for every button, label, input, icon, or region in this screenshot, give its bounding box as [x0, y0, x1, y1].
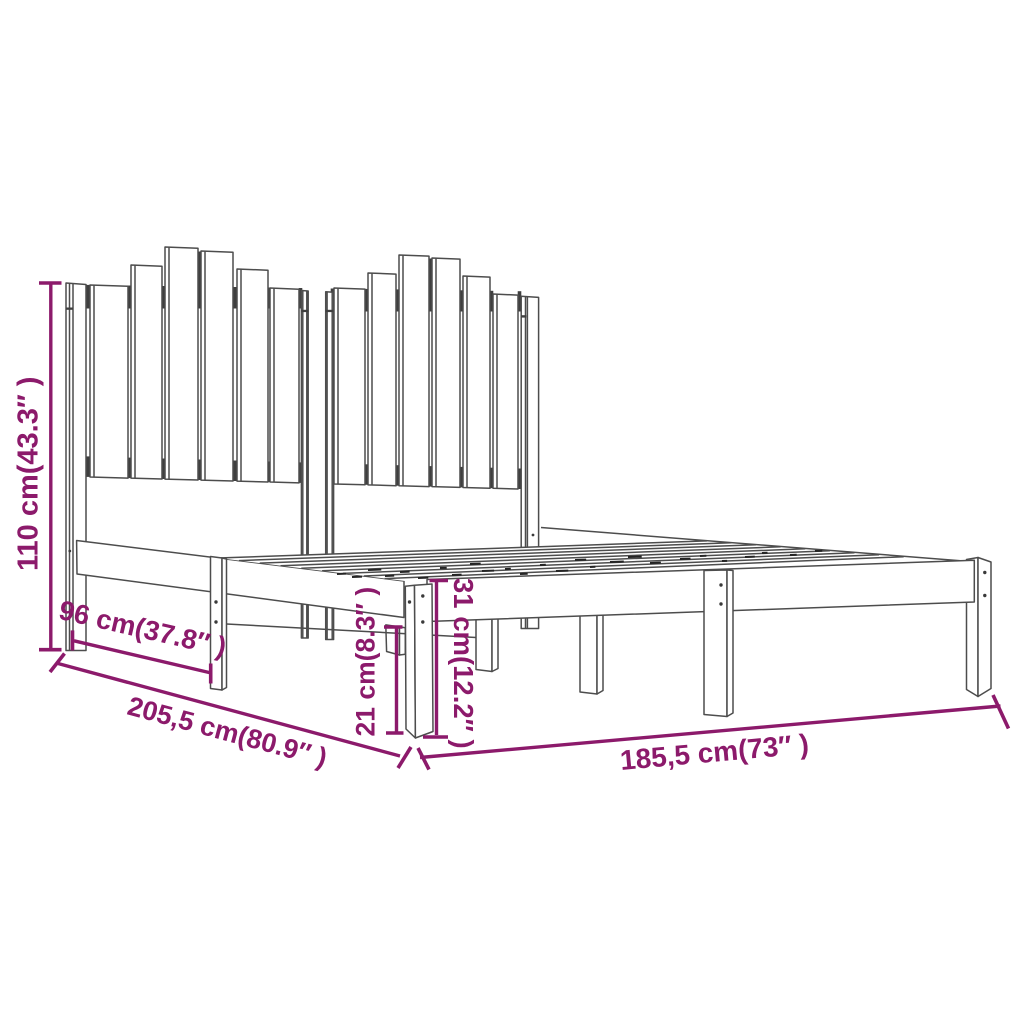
svg-text:21 cm(8.3″ ): 21 cm(8.3″ ) [351, 587, 381, 737]
svg-text:31 cm(12.2″ ): 31 cm(12.2″ ) [448, 578, 479, 749]
svg-text:110 cm(43.3″ ): 110 cm(43.3″ ) [13, 377, 45, 571]
